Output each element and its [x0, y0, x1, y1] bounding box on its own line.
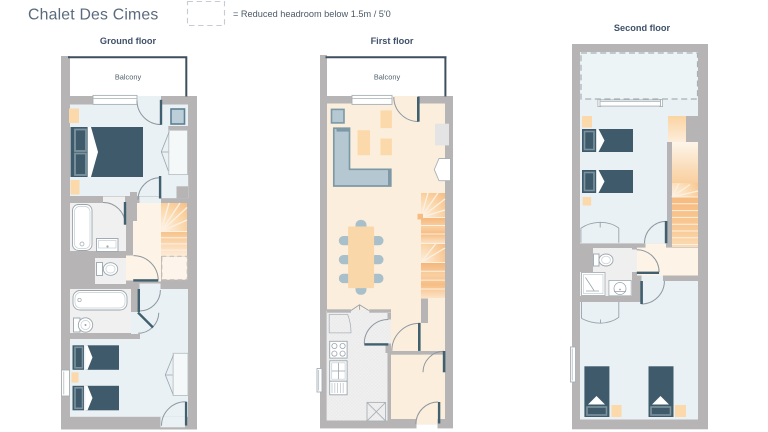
svg-text:Balcony: Balcony	[374, 73, 401, 82]
svg-text:Second floor: Second floor	[614, 23, 671, 33]
svg-text:First floor: First floor	[371, 36, 414, 46]
svg-text:Balcony: Balcony	[115, 73, 142, 82]
svg-text:Chalet Des Cimes: Chalet Des Cimes	[28, 7, 159, 24]
svg-text:= Reduced headroom below 1.5m: = Reduced headroom below 1.5m / 5'0	[233, 9, 391, 19]
svg-text:Ground floor: Ground floor	[100, 36, 157, 46]
